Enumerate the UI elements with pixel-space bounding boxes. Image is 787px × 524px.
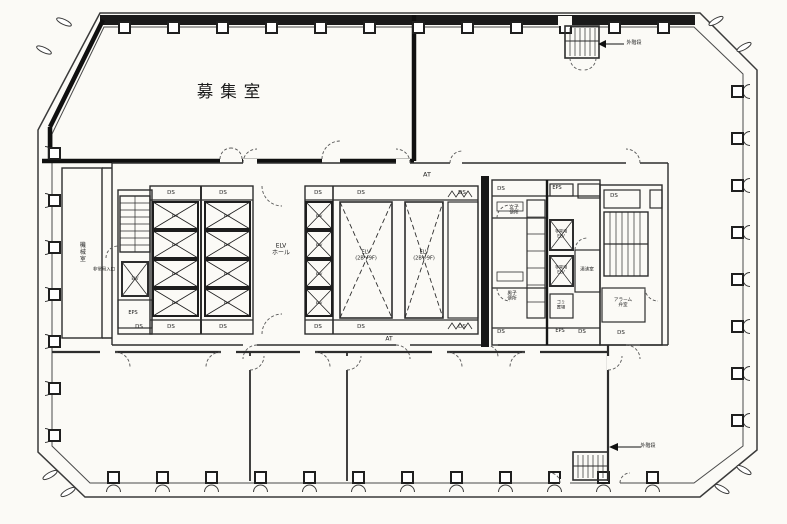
elv-car-label: ELV — [224, 272, 231, 276]
elv-car-label: ELV — [224, 243, 231, 247]
ds-label: DS — [357, 324, 365, 330]
ds-label: DS — [219, 324, 227, 330]
ext-stair-label: 外階段 — [626, 41, 641, 47]
floorplan-canvas: 募集室ATATDSDSDSDSDSDSDSDSDSDSDSDSDSDSDSDSE… — [0, 0, 787, 524]
ds-label: DS — [167, 190, 175, 196]
machine-room-label: 機械室 — [78, 242, 85, 263]
elv-car-label: ELV — [172, 214, 179, 218]
emergency-elv-label: 非常用 ELV — [555, 229, 568, 238]
elv-car-label: ELV — [316, 301, 323, 305]
at-label-top: AT — [423, 171, 431, 178]
womens-toilet-label: 女子 便所 — [509, 206, 519, 217]
ds-label: DS — [610, 193, 618, 199]
ds-label: DS — [219, 190, 227, 196]
labels-layer: 募集室ATATDSDSDSDSDSDSDSDSDSDSDSDSDSDSDSDSE… — [0, 0, 787, 524]
hot-water-label: 湯沸室 — [580, 267, 594, 272]
emergency-entrance-label: 非常用入口 — [93, 269, 115, 274]
ds-label: DS — [135, 324, 143, 330]
future-shaft-label: ELV (2B〜9F) — [413, 250, 435, 261]
ds-label: DS — [314, 190, 322, 196]
mens-toilet-label: 男子 便所 — [507, 292, 517, 303]
ds-label: DS — [357, 190, 365, 196]
elv-car-label: ELV — [316, 243, 323, 247]
eps-label: EPS — [128, 311, 137, 317]
elv-car-label: ELV — [316, 214, 323, 218]
ds-label: DS — [578, 329, 586, 335]
ext-stair-label: 外階段 — [640, 444, 655, 450]
elv-car-label: ELV — [172, 301, 179, 305]
elv-car-label: ELV — [172, 243, 179, 247]
eps-label: EPS — [555, 329, 564, 335]
emergency-elv-label: 非常用 ELV — [555, 265, 568, 274]
elv-hall-label: ELV ホール — [272, 243, 290, 256]
elv-car-label: ELV — [131, 277, 138, 281]
ds-label: DS — [497, 186, 505, 192]
elv-car-label: ELV — [224, 301, 231, 305]
ds-label: DS — [314, 324, 322, 330]
at-label-bottom: AT — [385, 337, 392, 344]
future-shaft-label: ELV (2B〜9F) — [355, 250, 377, 261]
eps-label: EPS — [552, 186, 561, 192]
ds-label: DS — [458, 324, 466, 330]
elv-car-label: ELV — [316, 272, 323, 276]
ds-label: DS — [497, 329, 505, 335]
ds-label: DS — [167, 324, 175, 330]
ds-label: DS — [458, 190, 466, 196]
elv-car-label: ELV — [172, 272, 179, 276]
room-title: 募集室 — [197, 83, 268, 101]
ds-label: DS — [617, 330, 625, 336]
elv-car-label: ELV — [224, 214, 231, 218]
alarm-valve-label: アラーム 弁室 — [614, 298, 632, 308]
garbage-label: ゴミ 置場 — [557, 300, 565, 309]
